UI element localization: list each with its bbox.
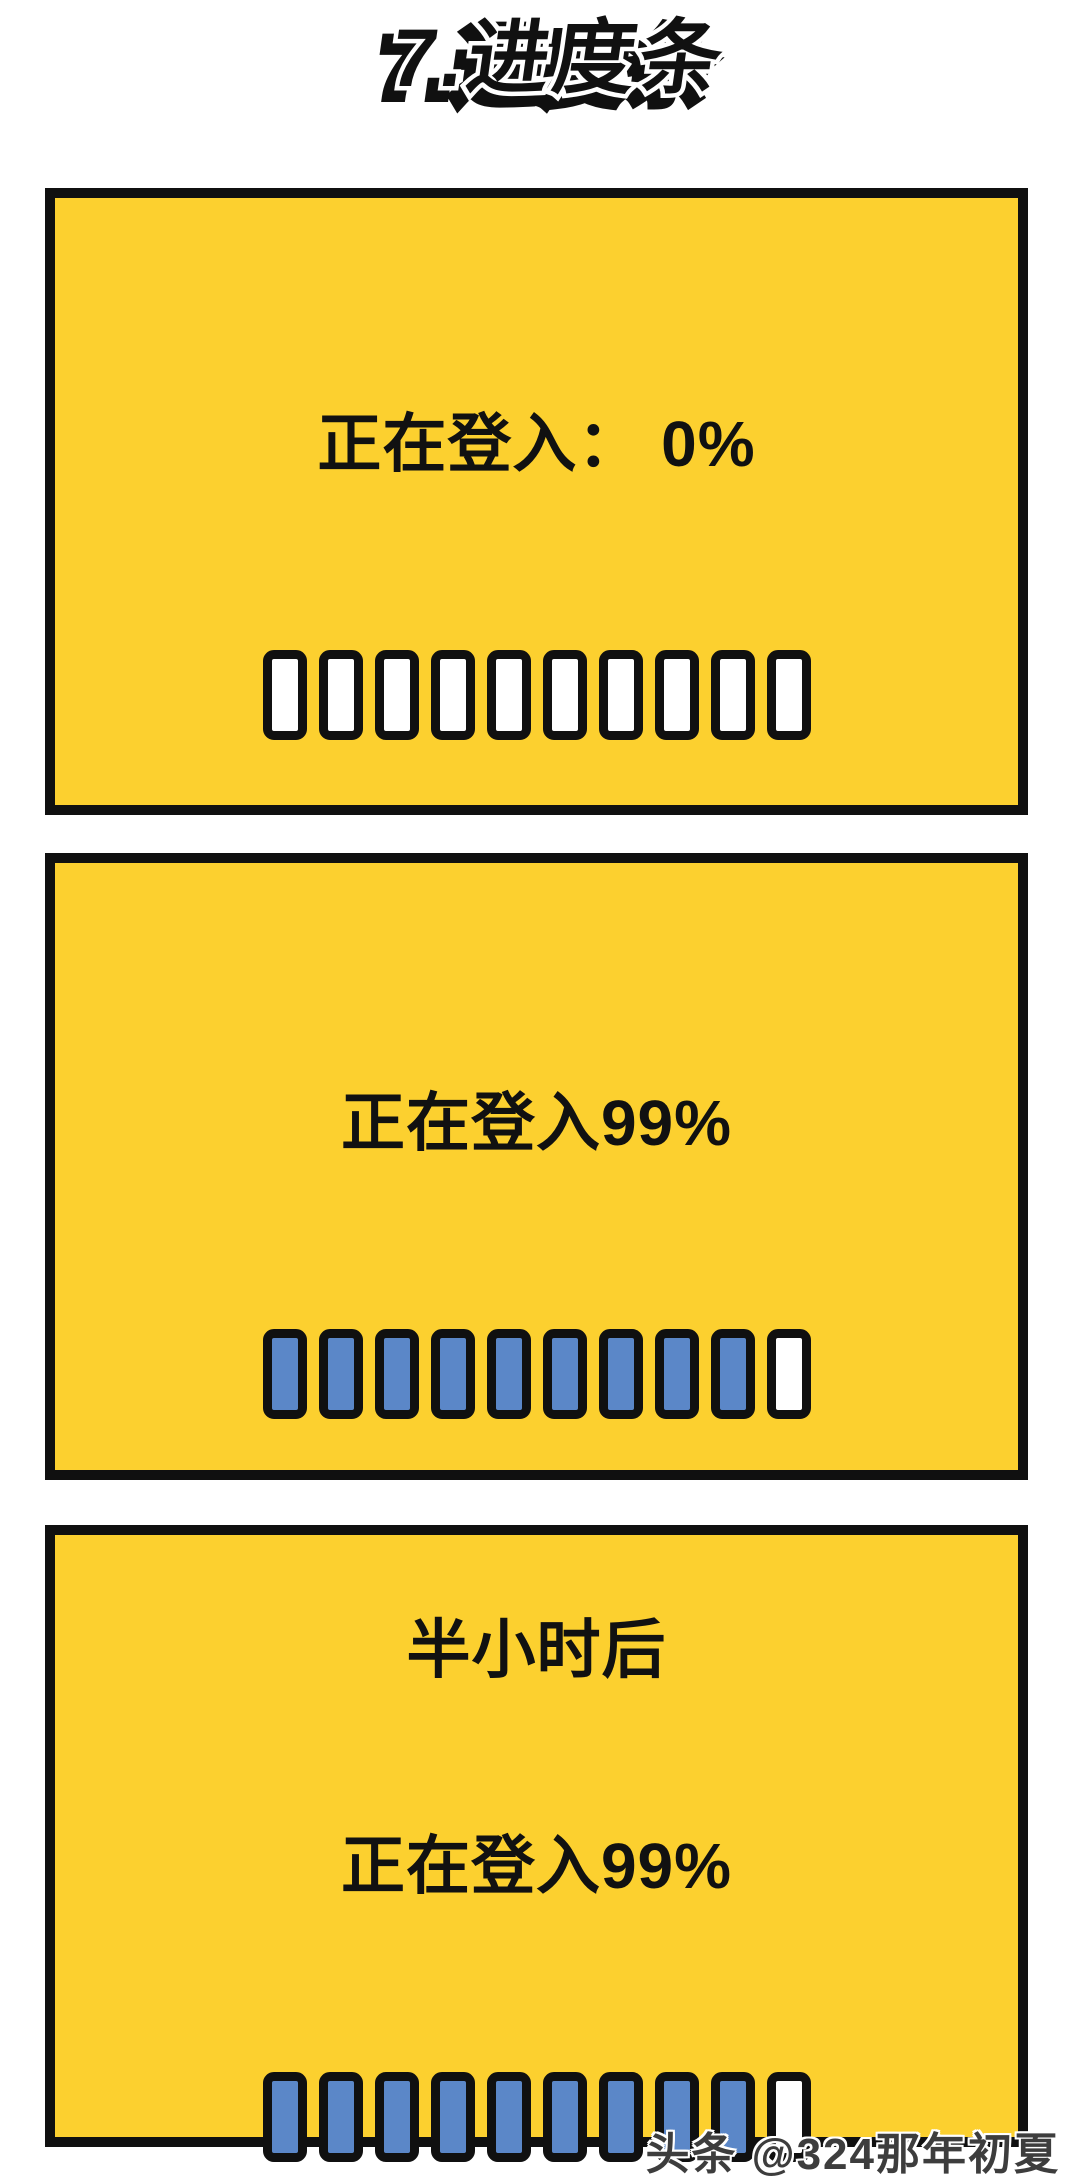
progress-segment-empty bbox=[487, 650, 531, 740]
progress-segment-filled bbox=[711, 1329, 755, 1419]
panel-caption: 半小时后 正在登入99% bbox=[341, 1470, 732, 2046]
progress-segment-empty bbox=[431, 650, 475, 740]
progress-bar bbox=[263, 650, 811, 740]
progress-segment-filled bbox=[319, 2072, 363, 2162]
caption-line: 正在登入99% bbox=[341, 1830, 732, 1902]
progress-segment-filled bbox=[543, 2072, 587, 2162]
progress-segment-filled bbox=[375, 2072, 419, 2162]
panel-content: 正在登入： 0% bbox=[263, 264, 811, 740]
progress-segment-empty bbox=[319, 650, 363, 740]
panel-content: 半小时后 正在登入99% bbox=[263, 1470, 811, 2162]
panel-content: 正在登入99% bbox=[263, 943, 811, 1419]
panel-caption: 正在登入99% bbox=[341, 943, 732, 1303]
comic-panel-login-0-percent: 正在登入： 0% bbox=[45, 188, 1028, 815]
caption-line: 正在登入： 0% bbox=[317, 408, 755, 480]
progress-segment-filled bbox=[487, 2072, 531, 2162]
progress-segment-filled bbox=[655, 1329, 699, 1419]
comic-panel-login-99-percent: 正在登入99% bbox=[45, 853, 1028, 1480]
caption-line: 半小时后 bbox=[341, 1614, 732, 1686]
page-title-text: 7.进度条 bbox=[385, 12, 732, 104]
progress-segment-empty bbox=[767, 1329, 811, 1419]
progress-bar bbox=[263, 1329, 811, 1419]
progress-segment-filled bbox=[319, 1329, 363, 1419]
progress-segment-empty bbox=[263, 650, 307, 740]
progress-segment-empty bbox=[599, 650, 643, 740]
progress-segment-empty bbox=[375, 650, 419, 740]
progress-segment-empty bbox=[711, 650, 755, 740]
progress-segment-empty bbox=[767, 650, 811, 740]
progress-segment-filled bbox=[599, 2072, 643, 2162]
progress-segment-filled bbox=[375, 1329, 419, 1419]
comic-page: 7.进度条 7.进度条 正在登入： 0% 正在登入99% 半小时后 正在登入99… bbox=[0, 0, 1080, 2181]
progress-segment-filled bbox=[599, 1329, 643, 1419]
caption-line: 正在登入99% bbox=[341, 1087, 732, 1159]
progress-segment-filled bbox=[543, 1329, 587, 1419]
progress-segment-empty bbox=[655, 650, 699, 740]
progress-segment-filled bbox=[431, 2072, 475, 2162]
page-title: 7.进度条 7.进度条 bbox=[0, 0, 1080, 132]
comic-panel-half-hour-later: 半小时后 正在登入99% bbox=[45, 1525, 1028, 2147]
progress-segment-filled bbox=[263, 2072, 307, 2162]
progress-segment-filled bbox=[431, 1329, 475, 1419]
progress-segment-filled bbox=[487, 1329, 531, 1419]
progress-segment-empty bbox=[543, 650, 587, 740]
panel-caption: 正在登入： 0% bbox=[317, 264, 755, 624]
progress-segment-filled bbox=[263, 1329, 307, 1419]
watermark: 头条 @324那年初夏 bbox=[645, 2118, 1060, 2182]
